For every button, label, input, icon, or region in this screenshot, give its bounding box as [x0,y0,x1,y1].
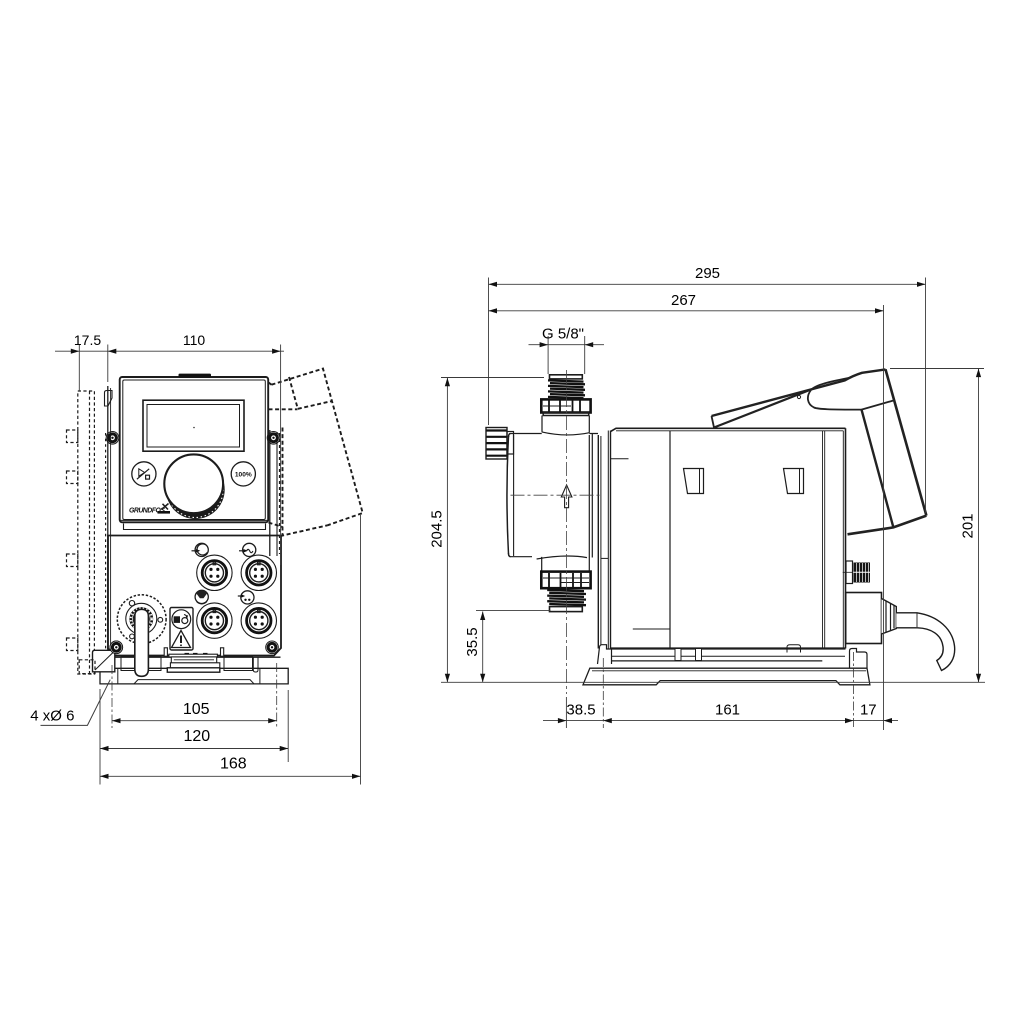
svg-text:201: 201 [959,513,976,538]
svg-text:17.5: 17.5 [74,332,101,348]
svg-text:120: 120 [183,728,210,745]
svg-text:161: 161 [715,702,740,719]
svg-text:295: 295 [695,265,720,282]
svg-text:204.5: 204.5 [429,510,446,548]
svg-text:38.5: 38.5 [566,702,595,719]
svg-text:G 5/8": G 5/8" [542,326,584,343]
svg-text:267: 267 [671,292,696,309]
svg-text:100%: 100% [235,472,252,479]
svg-text:17: 17 [860,702,877,719]
svg-text:105: 105 [183,701,210,718]
svg-text:35.5: 35.5 [464,627,481,656]
svg-text:168: 168 [220,755,247,772]
svg-text:4 xØ 6: 4 xØ 6 [30,707,74,724]
svg-text:110: 110 [183,332,206,348]
